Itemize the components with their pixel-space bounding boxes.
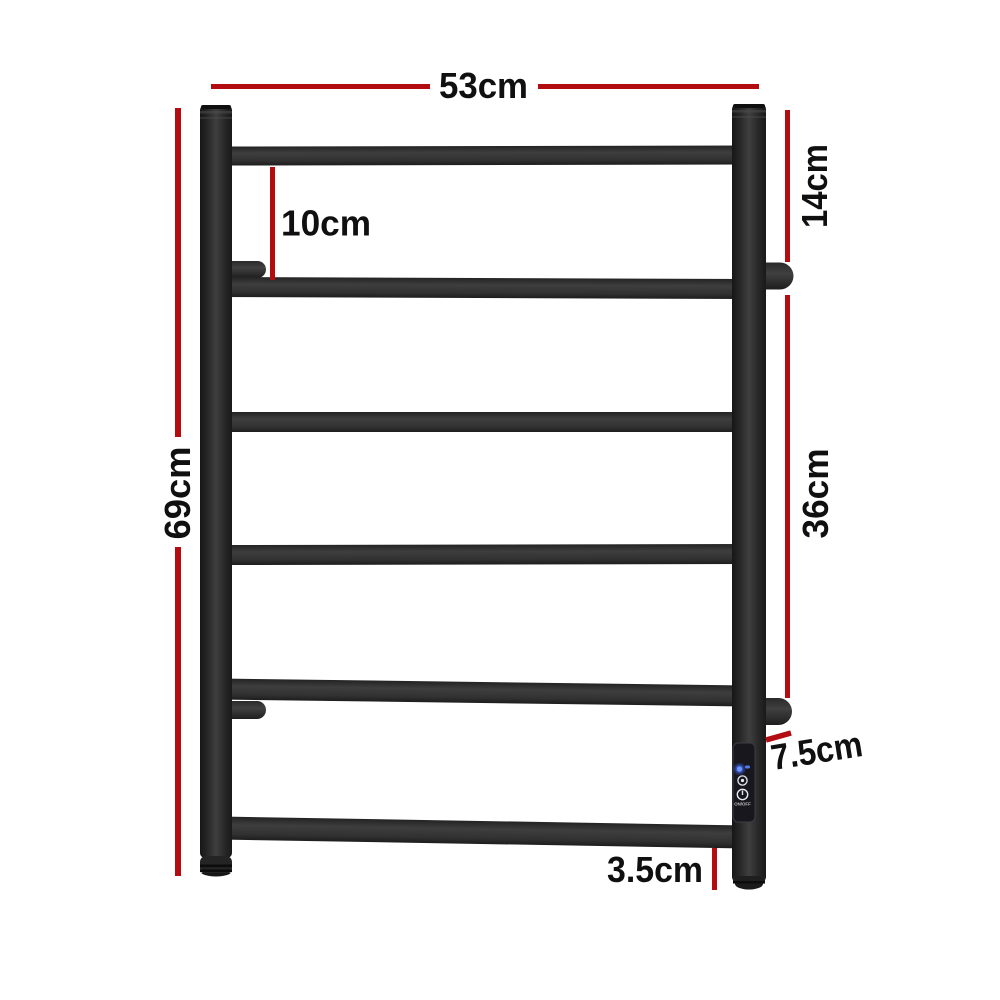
svg-text:10cm: 10cm [281, 203, 371, 244]
svg-text:69cm: 69cm [157, 447, 198, 540]
svg-text:3.5cm: 3.5cm [607, 849, 703, 890]
svg-text:7.5cm: 7.5cm [768, 723, 865, 778]
svg-text:53cm: 53cm [439, 65, 528, 106]
svg-text:36cm: 36cm [795, 449, 836, 539]
svg-text:14cm: 14cm [794, 144, 835, 228]
svg-text:ON/OFF: ON/OFF [734, 802, 751, 807]
